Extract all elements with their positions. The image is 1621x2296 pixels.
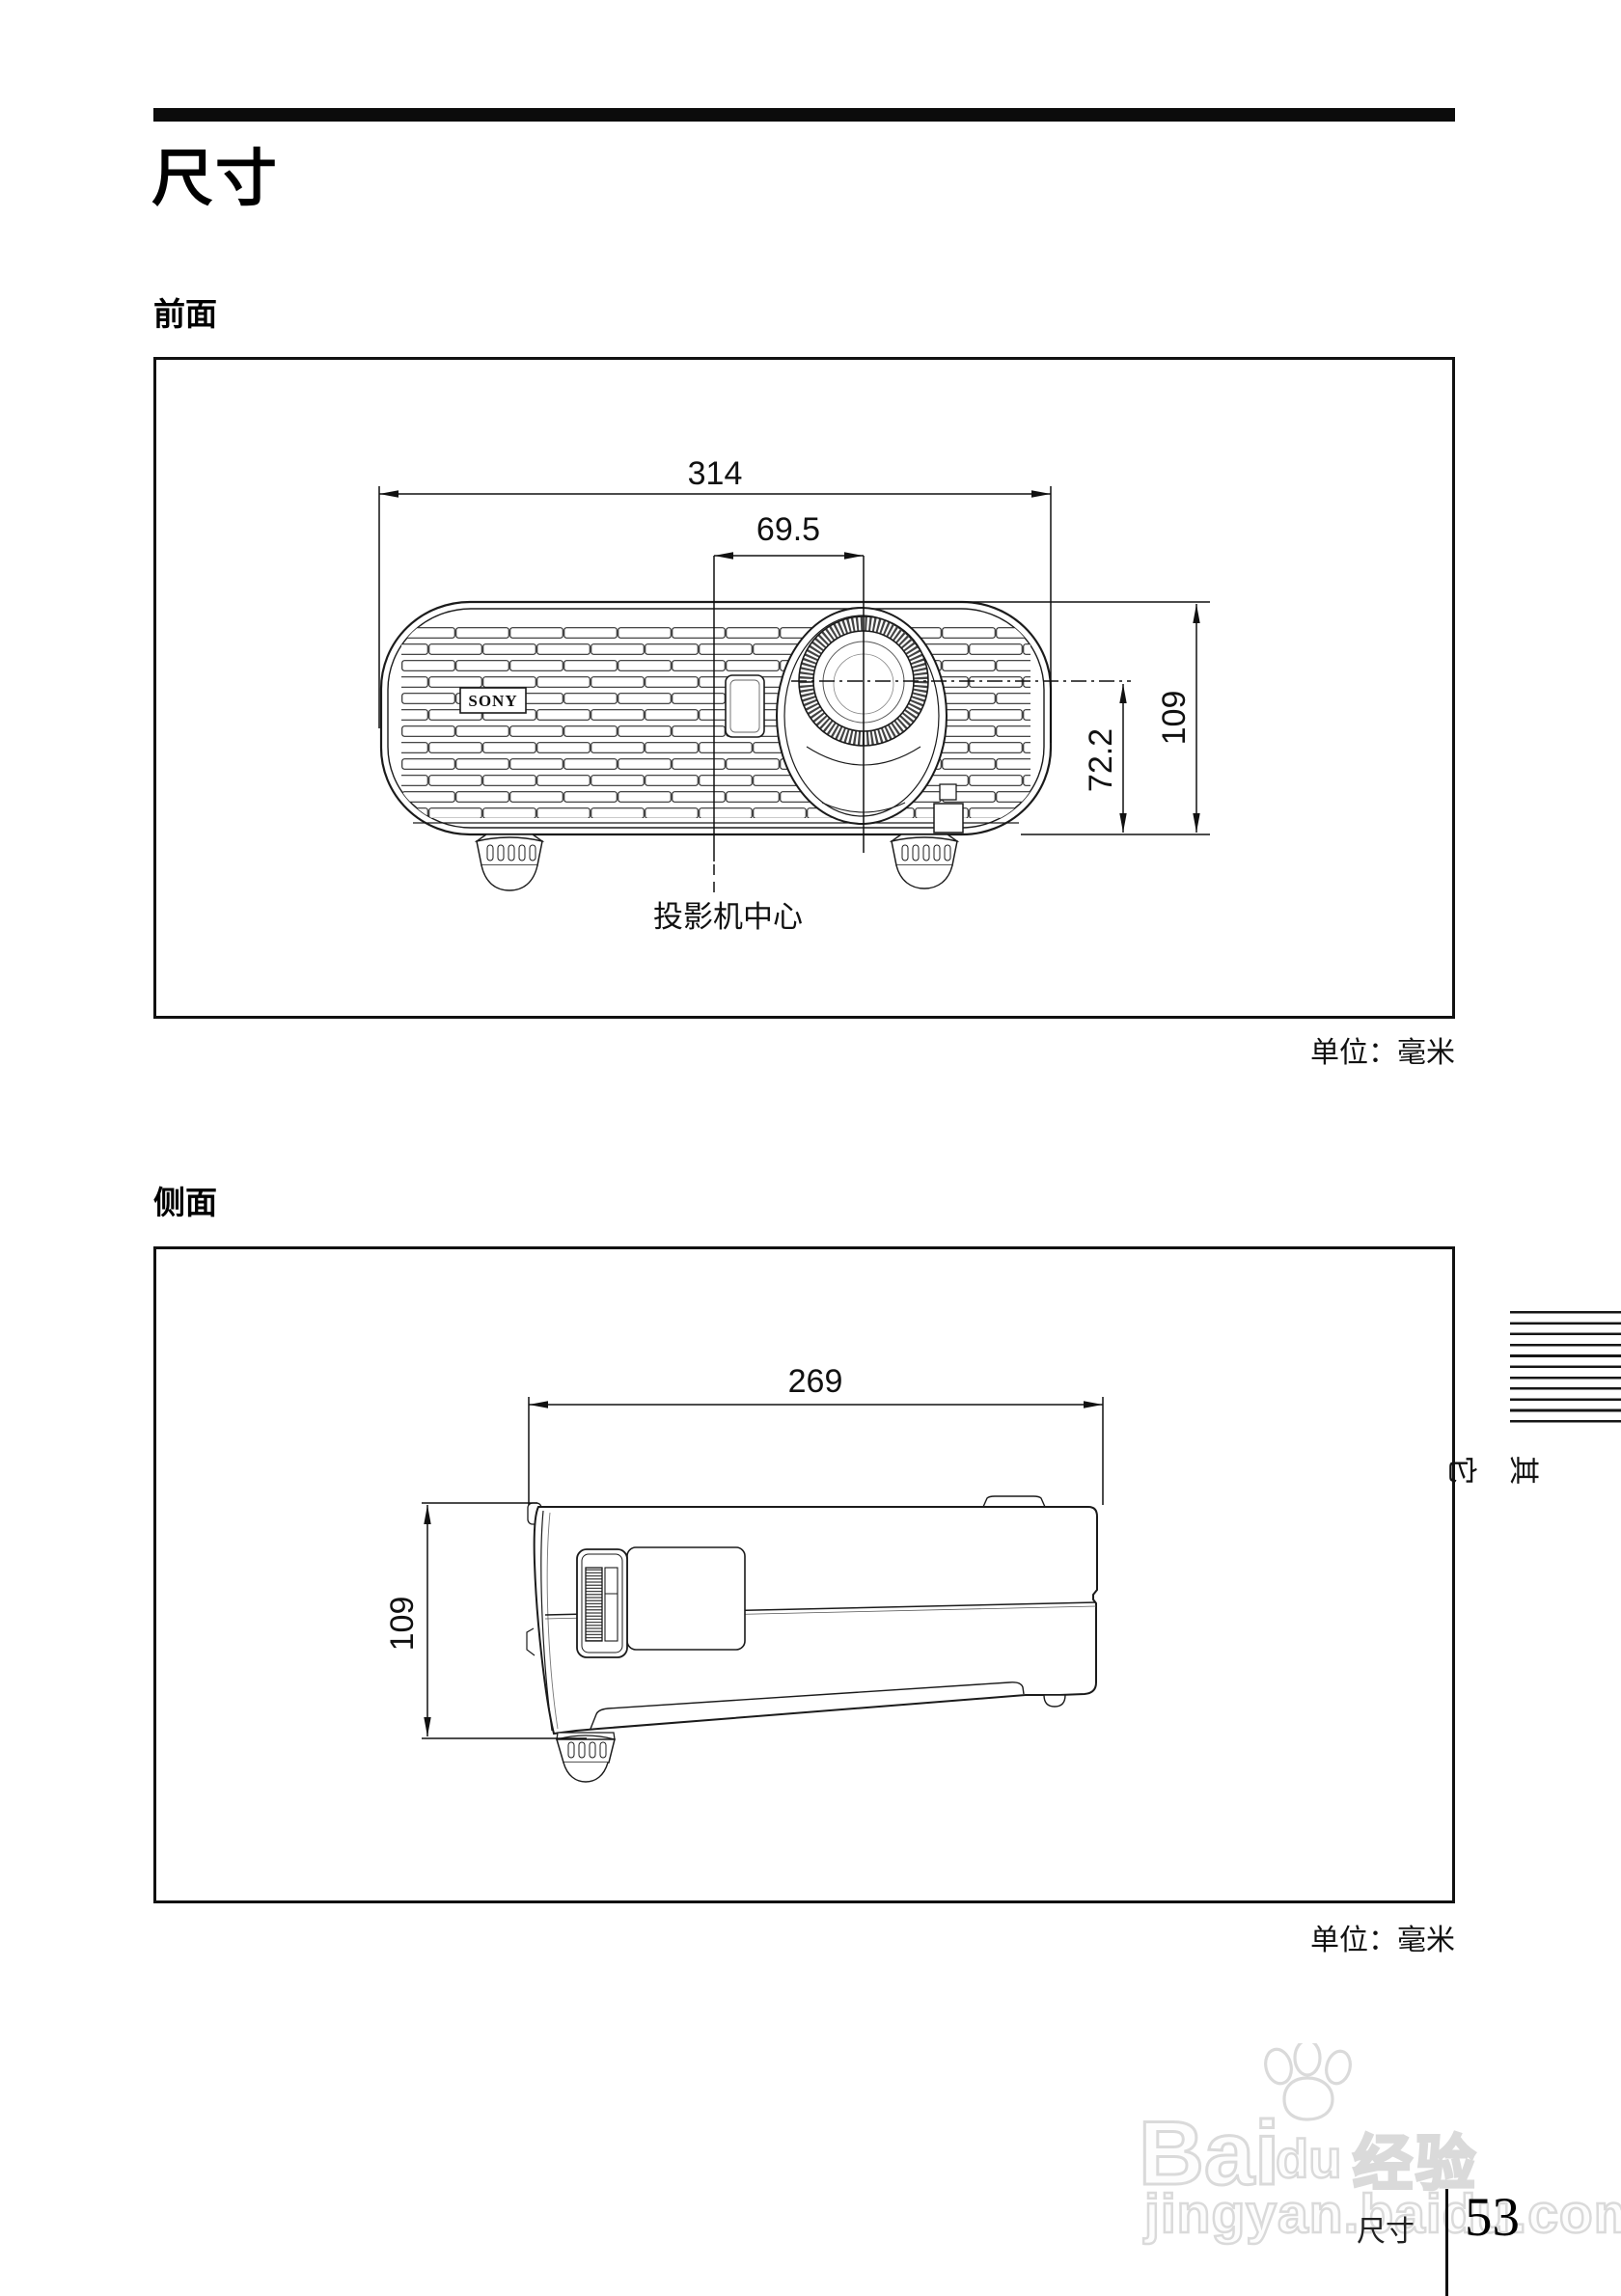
lens-offset-dim-label: 69.5 [756,511,820,548]
side-unit-note: 单位：毫米 [1310,1916,1455,1958]
page-title: 尺寸 [151,129,279,218]
side-section-heading: 侧面 [153,1177,217,1223]
chapter-tab-label: 其它 [1492,1442,1553,1504]
dimension-depth-269 [529,1397,1103,1505]
front-right-foot [892,834,957,888]
brand-logo-text: SONY [468,692,517,710]
front-view-figure-box: SONY [153,357,1455,1019]
top-vent-bump [983,1496,1045,1507]
lens-height-dim-label: 72.2 [1083,728,1119,792]
front-view-drawing: SONY [156,360,1452,1016]
lens-assembly [777,608,947,824]
watermark-paw-icon [1250,2043,1365,2122]
rear-foot [1044,1695,1065,1707]
footer-page-number: 53 [1465,2186,1520,2249]
front-face-clip [527,1628,535,1655]
projector-center-label: 投影机中心 [653,900,803,934]
side-view-drawing: 269 109 [156,1249,1452,1900]
watermark-brand-right: du [1276,2127,1341,2190]
front-section-heading: 前面 [153,288,217,335]
ir-remote-window [726,675,764,737]
side-panel-cover [627,1547,745,1650]
zoom-slider-assembly [577,1549,627,1657]
chapter-tab-hatch-lines [1510,1311,1621,1424]
top-rule-bar [153,108,1455,122]
side-front-foot [557,1733,615,1782]
footer-divider-line [1445,2189,1448,2296]
width-dim-label: 314 [688,455,743,492]
side-height-dim-label: 109 [384,1597,421,1652]
front-left-foot [477,834,542,890]
depth-dim-label: 269 [788,1363,843,1400]
footer-chapter-label: 尺寸 [1357,2207,1415,2250]
height-dim-label: 109 [1156,691,1193,746]
side-view-figure-box: 269 109 [153,1246,1455,1903]
brand-logo-plate: SONY [460,688,526,713]
manual-page: 尺寸 前面 [0,0,1621,2296]
front-unit-note: 单位：毫米 [1310,1028,1455,1071]
